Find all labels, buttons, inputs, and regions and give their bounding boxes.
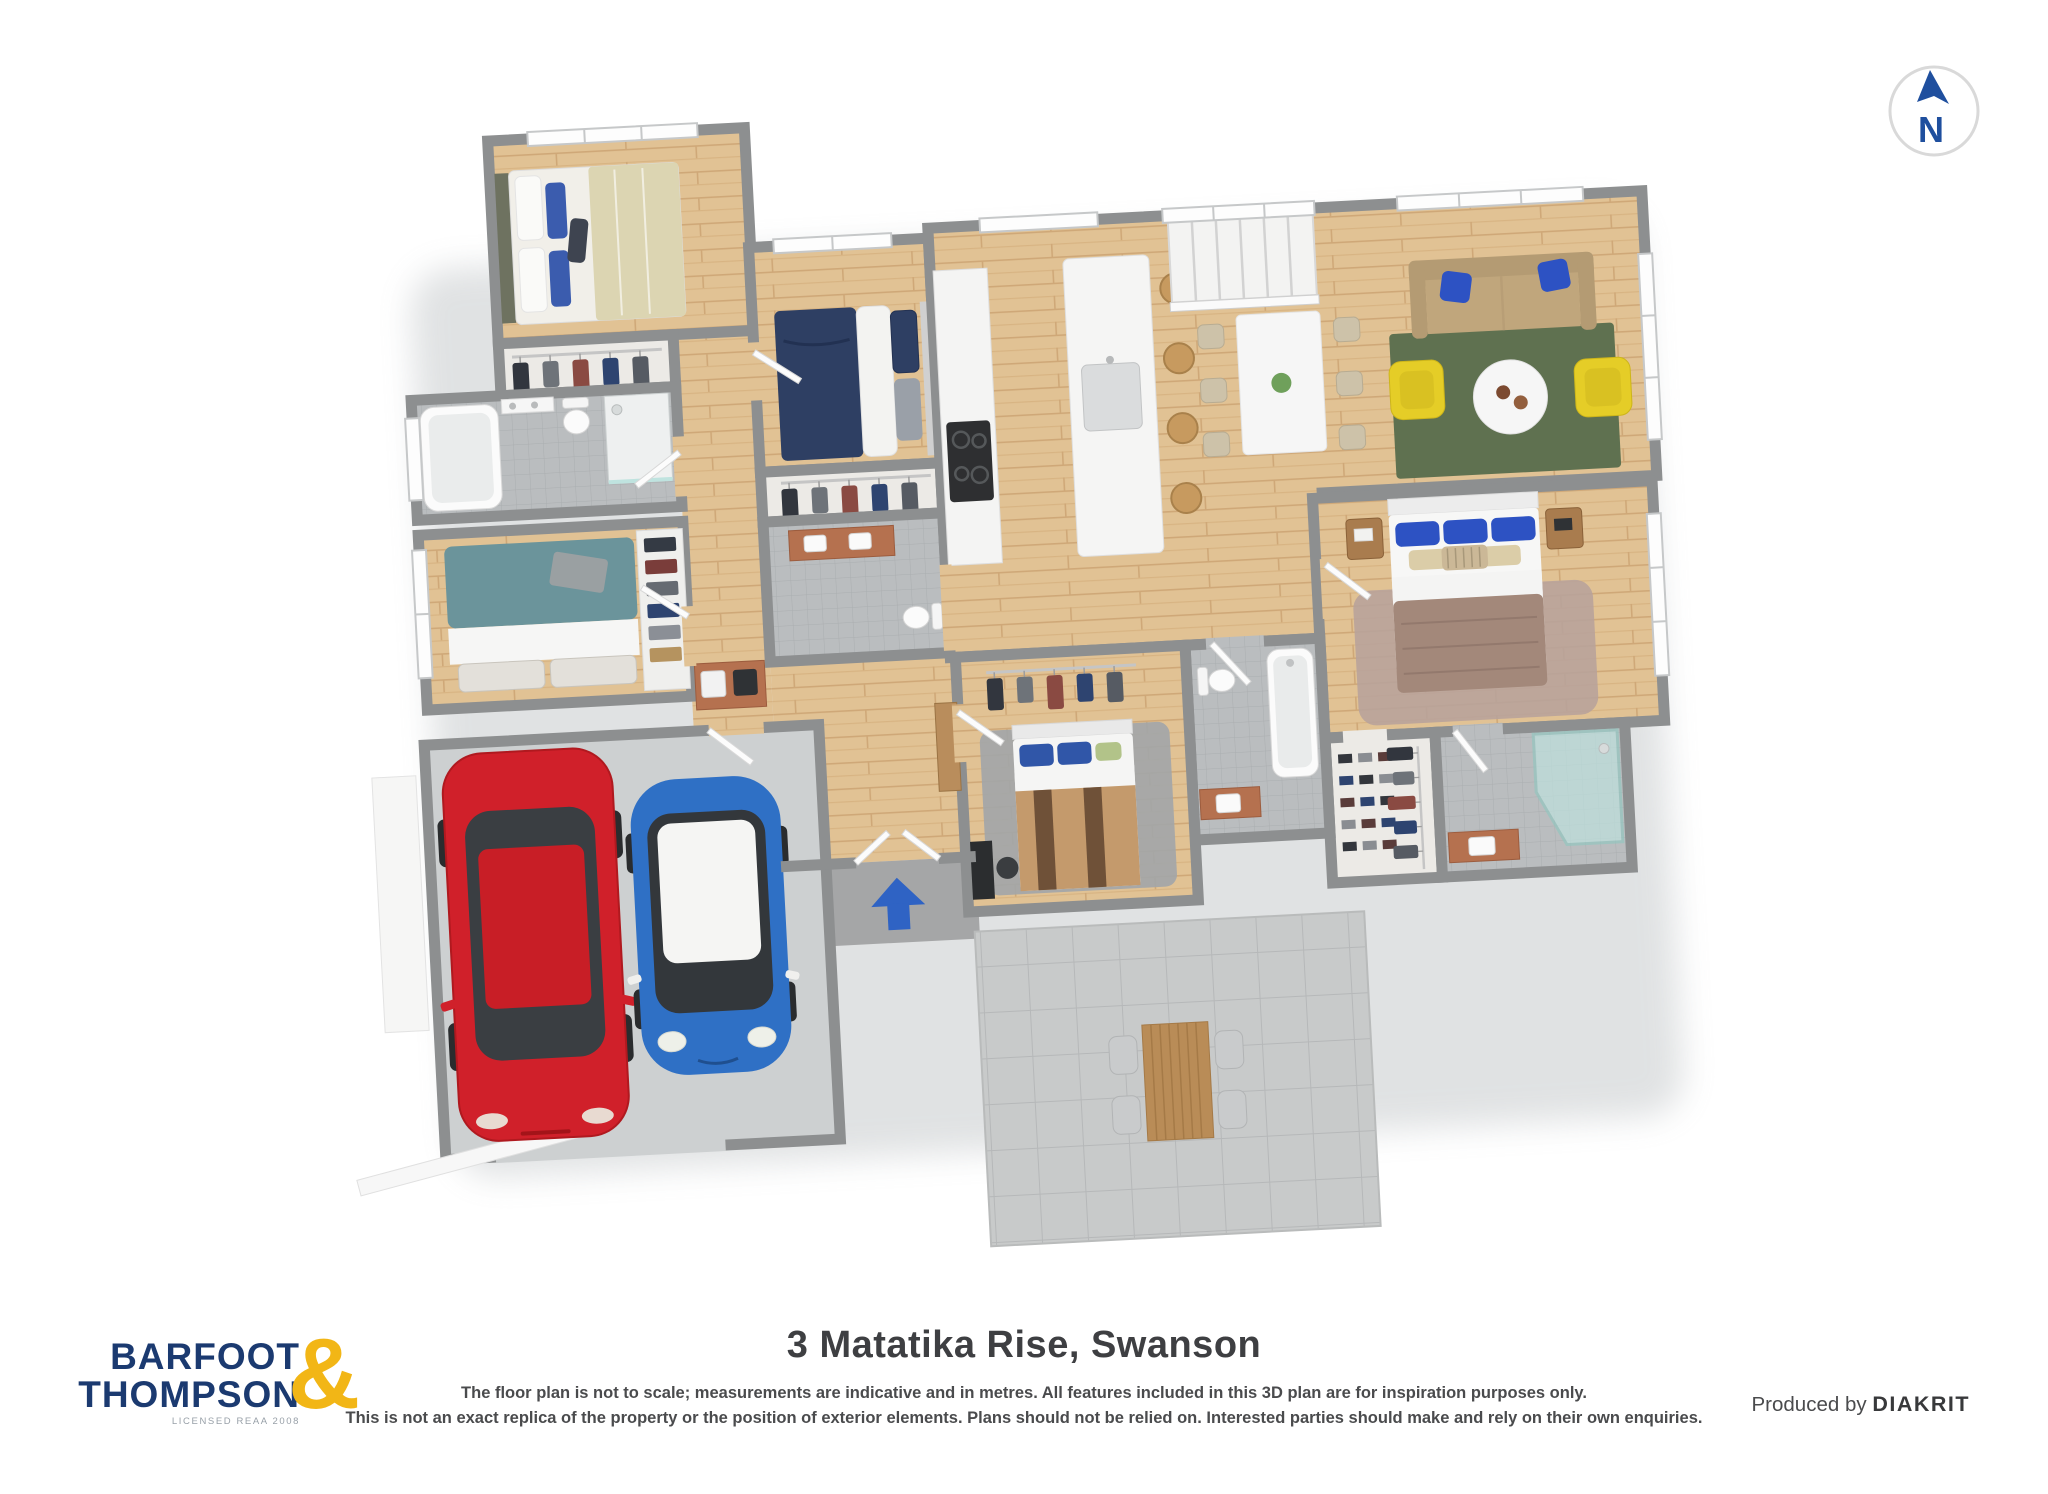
toilet-tank [562, 397, 588, 408]
bar-stool [1167, 412, 1199, 444]
island-sink [1081, 362, 1142, 431]
pillow-gray [894, 378, 923, 441]
dining-chair [1333, 317, 1360, 342]
disclaimer-line1: The floor plan is not to scale; measurem… [0, 1384, 2048, 1403]
sink [1468, 836, 1495, 855]
pillow-patterned [550, 655, 637, 687]
book [1554, 518, 1573, 531]
outdoor-chair [1108, 1035, 1138, 1074]
pillow-navy [890, 310, 919, 373]
compass-label: N [1918, 109, 1944, 150]
armchair-seat [1584, 367, 1622, 407]
floorplan [303, 74, 1703, 1280]
disclaimer-line2: This is not an exact replica of the prop… [0, 1409, 2048, 1428]
bed-duvet-teal [444, 537, 638, 629]
car-white-roof [657, 819, 762, 964]
property-address-title: 3 Matatika Rise, Swanson [0, 1324, 2048, 1367]
outdoor-chair [1112, 1095, 1142, 1134]
pillow-blue [1019, 743, 1054, 767]
bar-stool [1163, 342, 1195, 374]
dining-chair [1339, 425, 1366, 450]
pillow-blue [545, 182, 568, 239]
bath-shelf [501, 397, 554, 414]
garage-side-panel [372, 776, 429, 1033]
folded-clothes [644, 537, 677, 553]
red-car [427, 746, 644, 1144]
armchair-seat [1399, 370, 1435, 410]
book [1354, 528, 1373, 541]
window [405, 418, 423, 501]
pillow-dark [567, 218, 589, 263]
bar-stool [1171, 482, 1203, 514]
sink [1216, 794, 1241, 813]
car-roof [478, 844, 592, 1009]
bathroom-small [763, 513, 950, 662]
folded-clothes [649, 647, 682, 663]
door-opening [1343, 729, 1388, 743]
dining-chair [1197, 324, 1224, 349]
outdoor-table [1142, 1022, 1214, 1141]
desk [970, 841, 995, 900]
garage [334, 725, 842, 1196]
bathroom-middle [1185, 638, 1330, 840]
produced-by-label: Produced by [1752, 1393, 1867, 1416]
shower-head [612, 404, 623, 415]
pillow-patterned [458, 660, 545, 692]
shower-head [1599, 743, 1610, 754]
pillow [518, 247, 547, 312]
bedroom-lower-middle [955, 645, 1198, 912]
bedroom-top-left [488, 128, 755, 344]
blue-car [616, 773, 805, 1078]
toilet-tank [1197, 667, 1208, 695]
toilet-tank [931, 603, 942, 629]
dining-chair [1336, 371, 1363, 396]
stairs [1166, 213, 1320, 312]
outdoor-chair [1214, 1030, 1244, 1069]
washing-machine [701, 670, 726, 697]
producer-name: DIAKRIT [1872, 1392, 1970, 1416]
pillow-blue [1491, 516, 1536, 542]
bedroom-left [418, 521, 692, 710]
bathtub-inner [428, 412, 495, 503]
master-bedroom [1312, 481, 1664, 738]
outdoor-chair [1217, 1090, 1247, 1129]
dining-area [1197, 309, 1366, 457]
laundry-nook [694, 660, 766, 710]
pillow-blue [1537, 258, 1572, 293]
pillow-blue [1439, 270, 1472, 303]
folded-clothes [645, 559, 678, 575]
folded-clothes [648, 625, 681, 641]
sink [849, 533, 872, 550]
cooktop [946, 420, 994, 502]
bed-duvet-navy [774, 307, 864, 461]
bedroom-middle [749, 238, 941, 472]
window-mullion [415, 614, 429, 615]
pillow-blue [1395, 521, 1440, 547]
dining-chair [1203, 432, 1230, 457]
bathtub-inner [1273, 655, 1313, 769]
dining-chair [1200, 378, 1227, 403]
floorplan-canvas: N [0, 0, 2048, 1494]
bathroom-left [411, 387, 682, 521]
window-mullion [832, 236, 833, 250]
pillow-blue [1443, 518, 1488, 544]
pillow [515, 175, 544, 240]
dryer [733, 669, 758, 696]
bed-blanket [588, 162, 686, 320]
produced-by: Produced by DIAKRIT [1752, 1392, 1971, 1417]
sink [804, 535, 827, 552]
floorplan-page: N BARFOOT THOMPSON & LICENSED REAA 2008 … [0, 0, 2048, 1494]
north-compass: N [1890, 67, 1978, 155]
walk-in-closet [1325, 732, 1442, 883]
pillow-blue [1057, 741, 1092, 765]
pillow-green [1095, 742, 1122, 761]
